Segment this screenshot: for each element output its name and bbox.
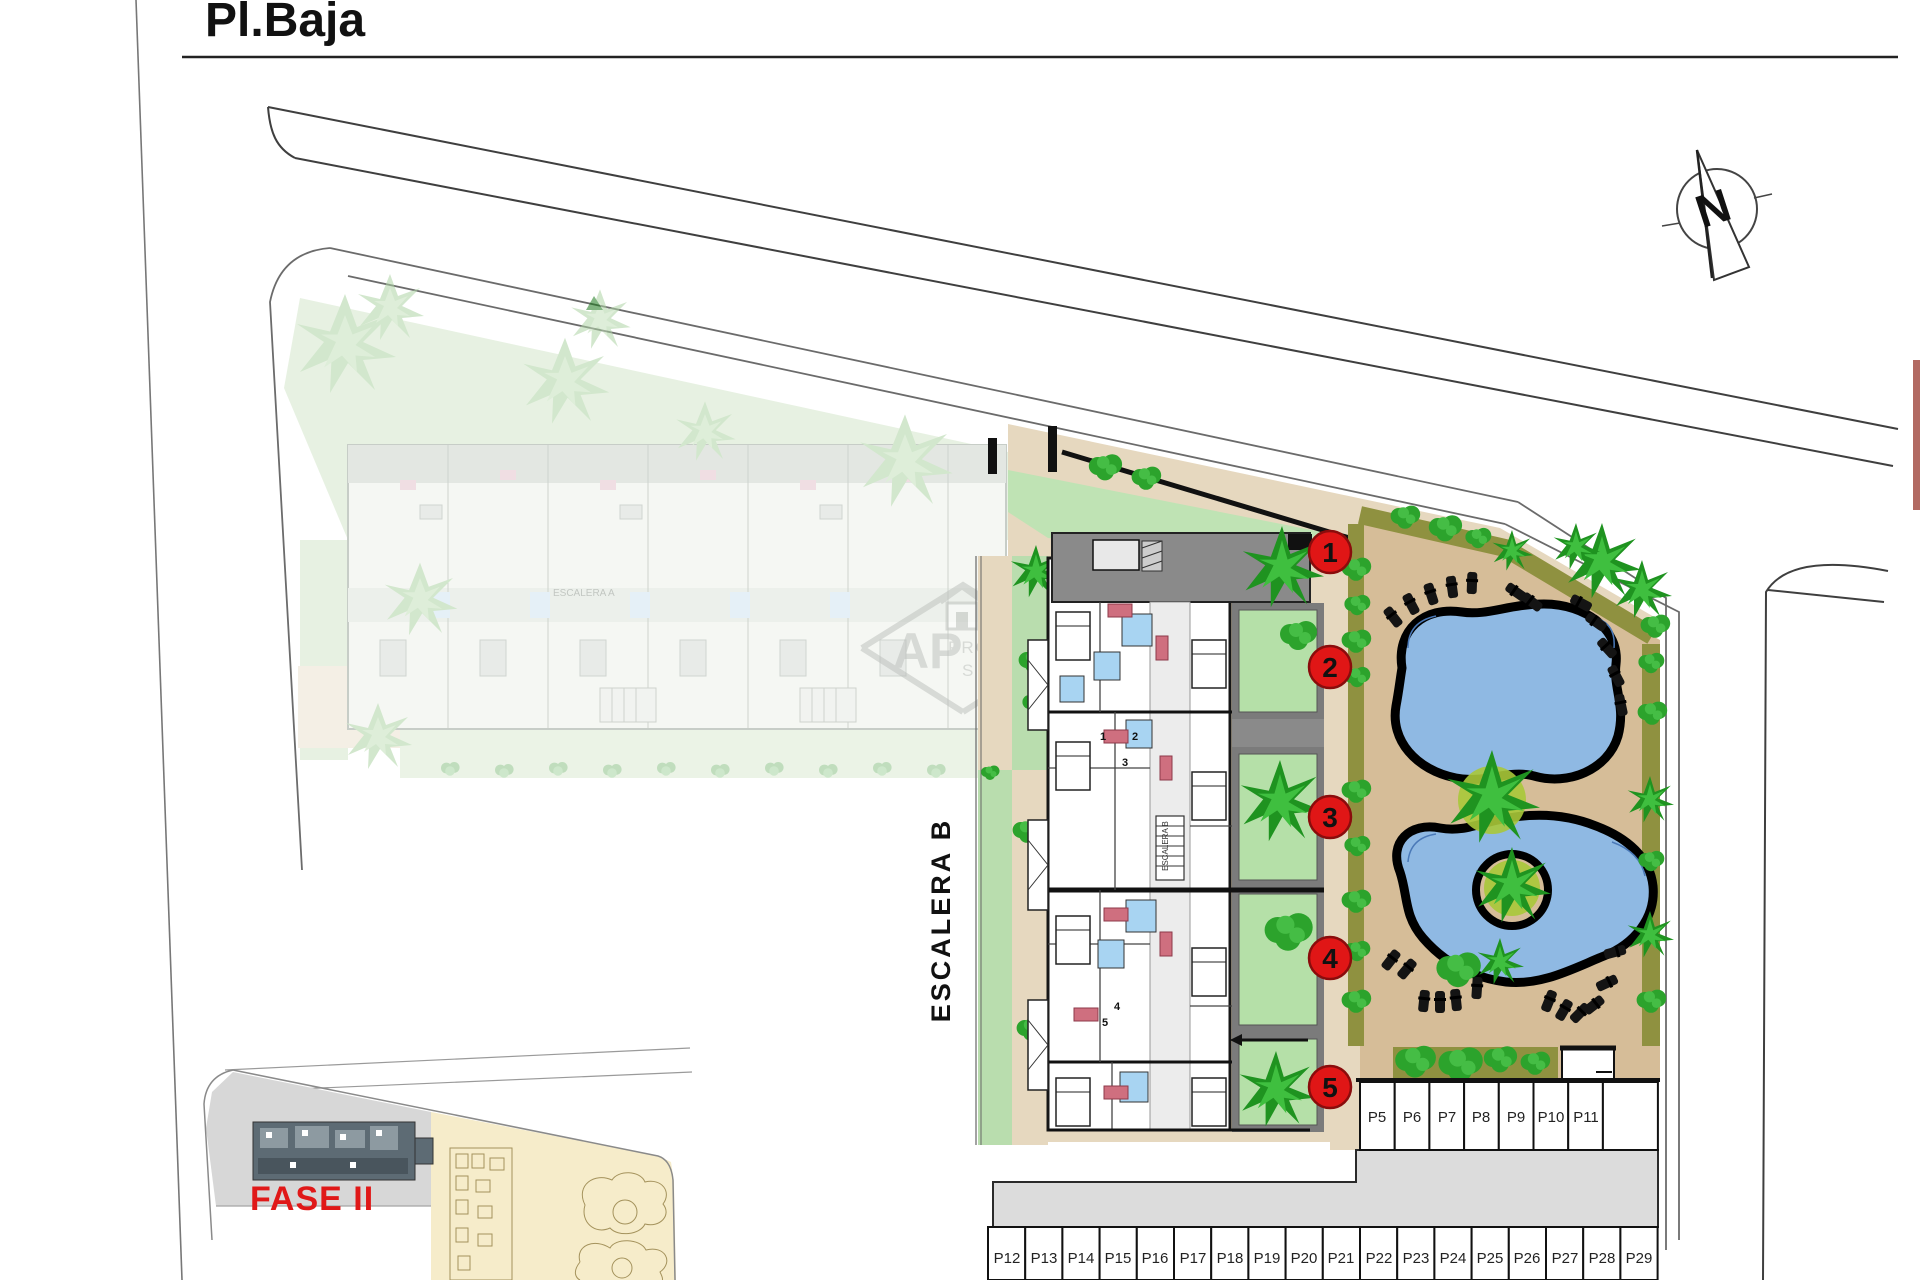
parking-label: P27 <box>1552 1250 1579 1267</box>
left-boundary-line <box>136 0 182 1280</box>
parking-label: P15 <box>1105 1250 1132 1267</box>
parking-upper-row: P5 P6 P7 P8 P9 P10 P11 <box>1360 1082 1658 1150</box>
compass-tick <box>1662 223 1680 226</box>
unit-marker-2: 2 <box>1309 646 1351 688</box>
escalera-b-label: ESCALERA B <box>926 818 956 1023</box>
roof-hatch <box>1142 541 1162 571</box>
north-label: N <box>1689 178 1737 238</box>
parking-label: P12 <box>994 1250 1021 1267</box>
parking-label: P9 <box>1507 1109 1525 1126</box>
parking-label: P8 <box>1472 1109 1490 1126</box>
svg-text:3: 3 <box>1322 802 1338 833</box>
parking-label: P7 <box>1438 1109 1456 1126</box>
parking-label: P24 <box>1440 1250 1467 1267</box>
site-plan-drawing: ESCALERA A AP PROPERTIES SPAIN <box>0 0 1920 1280</box>
west-walkway <box>978 556 1012 770</box>
gate-post <box>988 438 997 474</box>
unit-marker-3: 3 <box>1309 796 1351 838</box>
unit-number: 5 <box>1102 1017 1108 1029</box>
pool-terrace <box>1342 506 1674 1083</box>
unit-marker-5: 5 <box>1309 1066 1351 1108</box>
gate-post <box>1048 426 1057 472</box>
fase-ii-inset: FASE II <box>204 1048 692 1280</box>
unit-marker-4: 4 <box>1309 937 1351 979</box>
parking-label: P13 <box>1031 1250 1058 1267</box>
parking-label: P11 <box>1573 1109 1599 1126</box>
parking-label: P29 <box>1626 1250 1653 1267</box>
unit-number: 3 <box>1122 757 1128 769</box>
parking-label: P28 <box>1589 1250 1616 1267</box>
parking-label: P23 <box>1403 1250 1430 1267</box>
parking-label: P14 <box>1068 1250 1095 1267</box>
unit-number: 1 <box>1100 731 1106 743</box>
svg-text:1: 1 <box>1322 537 1338 568</box>
pool-structure <box>1560 1048 1616 1080</box>
inset-yellow-plot <box>431 1112 676 1280</box>
escalera-b-building: 1 2 3 4 5 ESCALERA B <box>1028 526 1324 1132</box>
west-grass-lower <box>978 770 1012 1145</box>
svg-text:4: 4 <box>1322 943 1338 974</box>
unit-number: 2 <box>1132 731 1138 743</box>
parking-label: P17 <box>1180 1250 1207 1267</box>
parking-label: P25 <box>1477 1250 1504 1267</box>
parking-lower-row: P12 P13 P14 P15 P16 P17 P18 P19 P20 P21 … <box>988 1227 1658 1280</box>
roof-room <box>1093 540 1139 570</box>
unit-marker-1: 1 <box>1309 531 1351 573</box>
parking-label: P10 <box>1538 1109 1565 1126</box>
parking-label: P18 <box>1217 1250 1244 1267</box>
parking-label: P6 <box>1403 1109 1421 1126</box>
inset-fase2-building <box>253 1122 433 1180</box>
north-compass: N <box>1662 150 1772 280</box>
parking-label: P21 <box>1328 1250 1355 1267</box>
escalera-b-plan-label: ESCALERA B <box>1161 821 1170 871</box>
parking-label: P26 <box>1514 1250 1541 1267</box>
parking-label: P5 <box>1368 1109 1386 1126</box>
parking-label: P22 <box>1366 1250 1393 1267</box>
fase-ii-label: FASE II <box>250 1180 374 1218</box>
road-corner-inner <box>1768 590 1884 602</box>
swimming-pool-upper <box>1395 604 1621 779</box>
parking-label: P19 <box>1254 1250 1281 1267</box>
road-end-cap <box>268 107 295 158</box>
parking-label: P16 <box>1142 1250 1169 1267</box>
tree-icon <box>571 289 630 348</box>
faded-garden-south <box>400 730 1008 778</box>
site-plan-page: ESCALERA A AP PROPERTIES SPAIN <box>0 0 1920 1280</box>
svg-text:5: 5 <box>1322 1072 1338 1103</box>
parking-space-empty <box>1603 1082 1658 1150</box>
unit-number: 4 <box>1114 1001 1121 1013</box>
inset-road-line <box>225 1048 690 1070</box>
svg-text:2: 2 <box>1322 652 1338 683</box>
road-corner-outer <box>1763 565 1888 1280</box>
west-balconies <box>1028 640 1048 1090</box>
edge-artifact <box>1913 360 1920 510</box>
page-title: Pl.Baja <box>205 0 365 47</box>
access-road <box>993 1150 1658 1227</box>
compass-tick <box>1754 194 1772 198</box>
escalera-a-building: ESCALERA A <box>348 445 1006 729</box>
escalera-a-label: ESCALERA A <box>553 588 615 599</box>
parking-label: P20 <box>1291 1250 1318 1267</box>
